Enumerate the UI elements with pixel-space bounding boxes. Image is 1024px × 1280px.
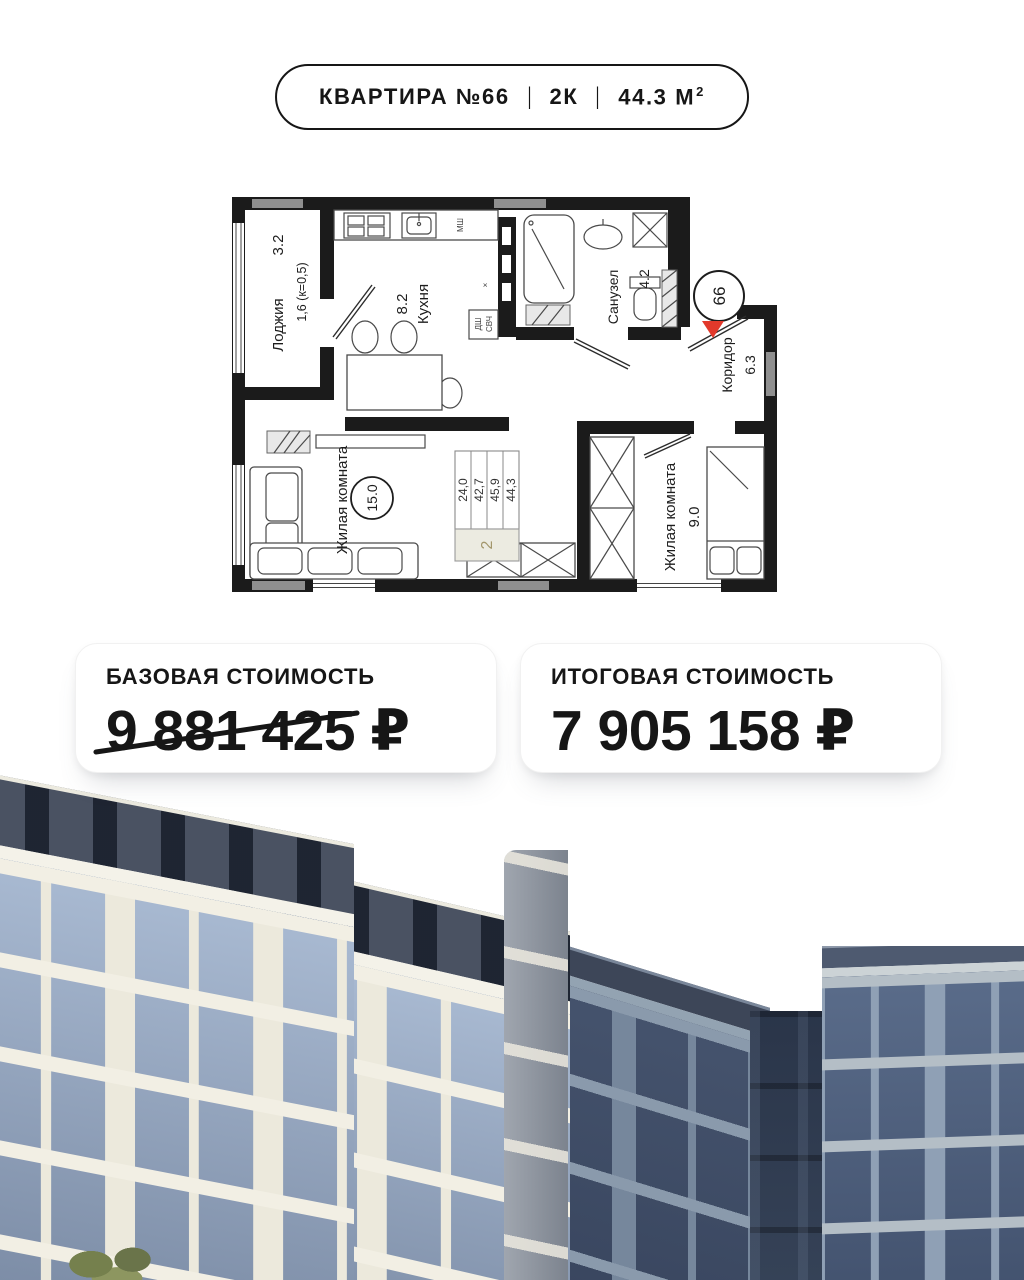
badge-area: 44.3 М2 [618,84,705,110]
apartment-badge: КВАРТИРА №66 | 2К | 44.3 М2 [275,64,749,130]
base-price-card: БАЗОВАЯ СТОИМОСТЬ 9 881 425 ₽ [75,643,497,773]
badge-divider: | [596,83,601,111]
badge-area-sup: 2 [696,84,705,99]
room-area-living: 15.0 [364,484,380,511]
vent-mark: × [481,282,490,287]
badge-divider: | [527,83,532,111]
bed-icon [707,447,764,579]
room-label-bedroom: Жилая комната [662,462,679,571]
badge-apartment-number: КВАРТИРА №66 [319,84,510,110]
final-price-value: 7 905 158 ₽ [551,698,911,764]
ruble-sign: ₽ [370,698,409,764]
stamp-value: 24,0 [456,478,470,502]
badge-rooms-count: 2К [550,84,579,110]
room-area-corridor: 6.3 [742,355,758,375]
oven-label: ДШ [474,318,483,331]
washer-label: МШ [456,218,465,232]
tree [52,1239,182,1280]
room-area-bathroom: 4.2 [636,269,652,289]
room-label-corridor: Коридор [719,337,735,393]
kitchen-table [347,355,442,410]
stamp-value: 42,7 [472,478,486,502]
room-area-bedroom: 9.0 [686,507,703,528]
rooms-count: 2 [479,540,496,549]
area-stamp: 24,0 42,7 45,9 44,3 2 [455,451,519,561]
final-price-card: ИТОГОВАЯ СТОИМОСТЬ 7 905 158 ₽ [520,643,942,773]
building-left-main [0,767,354,1280]
room-label-living: Жилая комната [334,445,351,554]
room-label-kitchen: Кухня [415,284,432,324]
building-right [822,946,1024,1280]
apartment-number: 66 [710,287,729,306]
stamp-value: 45,9 [488,478,502,502]
stamp-value: 44,3 [504,478,518,502]
stairs-hatch [267,431,310,453]
wardrobe-icon [590,437,634,579]
strikethrough-price: 9 881 425 [106,698,355,764]
base-price-value: 9 881 425 ₽ [106,698,466,764]
room-label-loggia: Лоджия [270,298,287,351]
room-area-kitchen: 8.2 [394,294,411,315]
building-render [0,753,1024,1280]
room-label-bathroom: Санузел [605,270,621,325]
plan-shaft-slits [502,227,511,301]
base-price-label: БАЗОВАЯ СТОИМОСТЬ [106,664,466,690]
floor-plan: 24,0 42,7 45,9 44,3 2 Лоджия 3.2 1,6 (к=… [232,197,777,592]
final-price-label: ИТОГОВАЯ СТОИМОСТЬ [551,664,911,690]
shower-icon [524,215,574,303]
room-coef-loggia: 1,6 (к=0,5) [295,262,309,321]
building-corner-tower [504,850,568,1280]
ruble-sign: ₽ [815,698,854,764]
microwave-label: СВЧ [485,316,494,332]
room-area-loggia: 3.2 [270,235,287,256]
